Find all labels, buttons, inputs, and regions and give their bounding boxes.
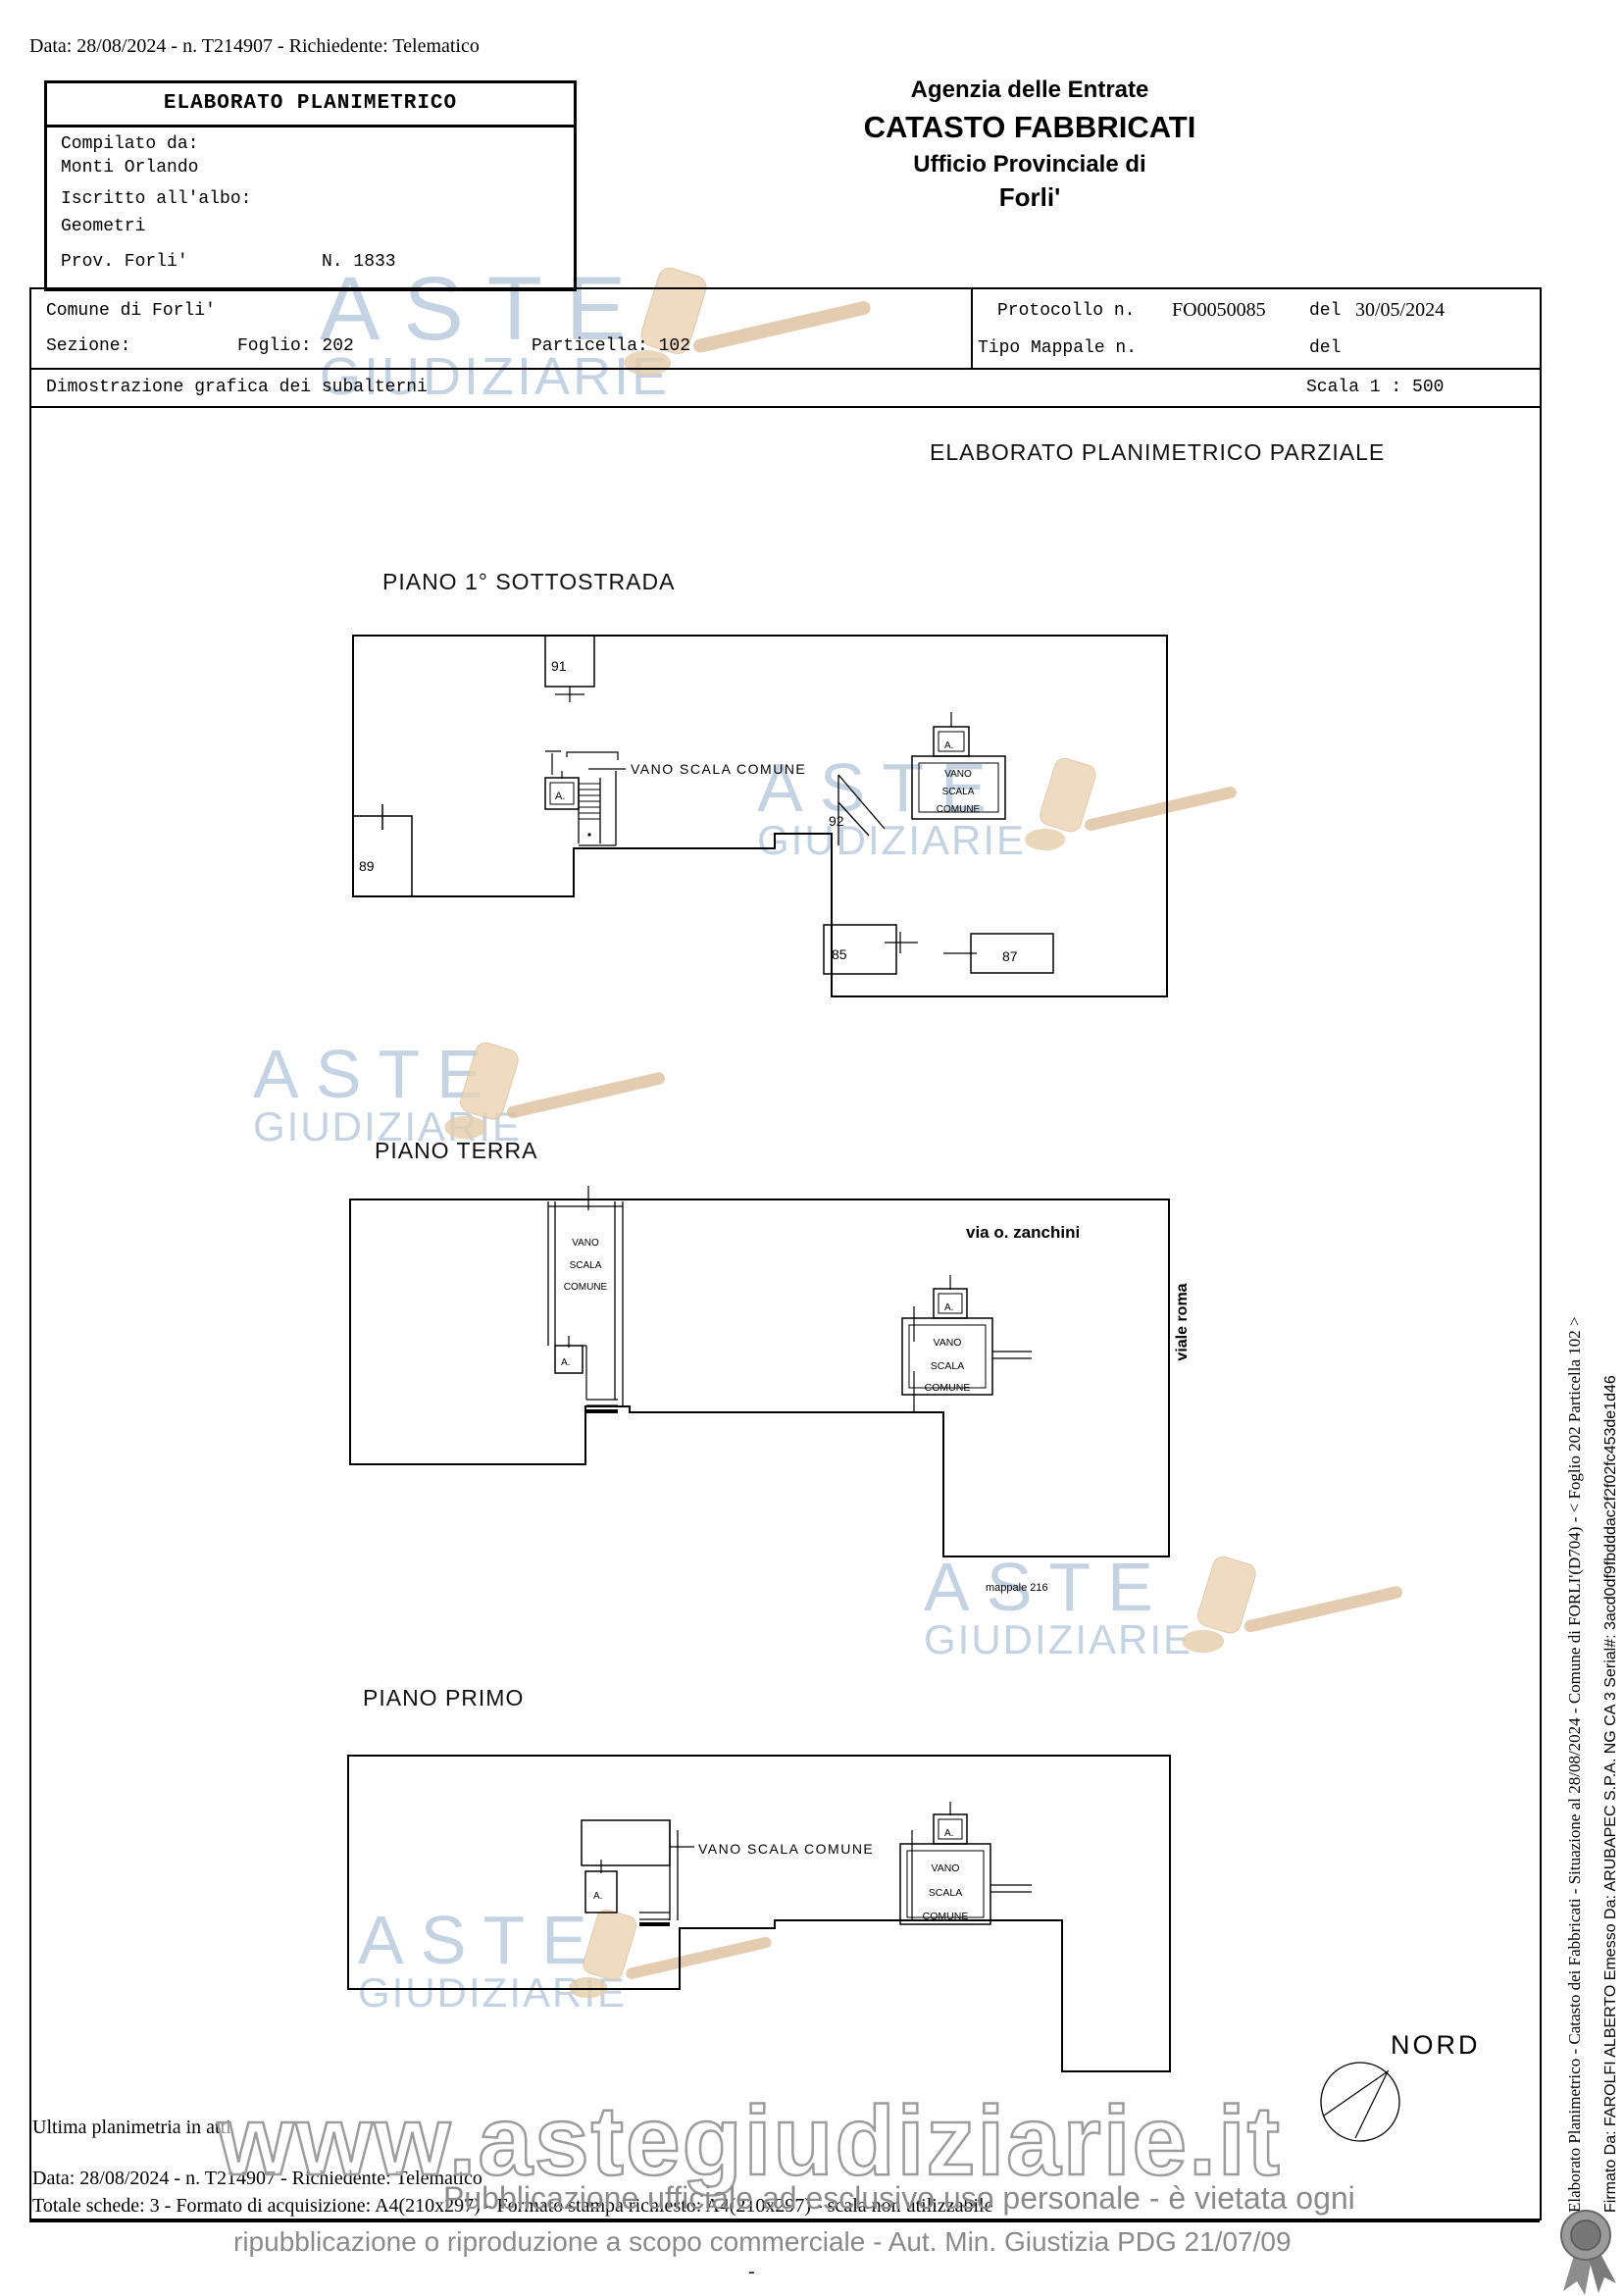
scala-label: SCALA — [570, 1260, 602, 1271]
vano-scala-comune-label: VANO SCALA COMUNE — [698, 1841, 874, 1857]
scala-label: SCALA — [931, 1360, 964, 1372]
vano-scala-comune-label: VANO SCALA COMUNE — [631, 761, 806, 777]
via-zanchini-label: via o. zanchini — [966, 1223, 1080, 1242]
sub-92-label: 92 — [829, 813, 844, 829]
sidebar-document-info: Elaborato Planimetrico - Catasto dei Fab… — [1565, 879, 1585, 2213]
totale-schede-line: Totale schede: 3 - Formato di acquisizio… — [32, 2195, 992, 2218]
scala-label: SCALA — [942, 787, 975, 797]
vano-label: VANO — [572, 1238, 599, 1249]
cadastral-document-page: { "header": { "data_line": "Data: 28/08/… — [0, 0, 1624, 2296]
sub-89-label: 89 — [359, 858, 375, 874]
vano-label: VANO — [944, 769, 972, 780]
mappale-216-label: mappale 216 — [986, 1582, 1048, 1594]
scala-label: SCALA — [929, 1887, 962, 1899]
ascensore-label: A. — [944, 1828, 953, 1839]
ascensore-label: A. — [555, 791, 565, 802]
sub-91-label: 91 — [551, 658, 567, 674]
stray-dash: - — [748, 2261, 755, 2283]
ascensore-label: A. — [561, 1357, 570, 1368]
sub-87-label: 87 — [1002, 948, 1018, 964]
comune-label: COMUNE — [923, 1911, 969, 1922]
floor-plans-drawing: 91 89 92 85 87 A. VANO SCALA COMUNE A. V… — [0, 0, 1624, 2296]
signature-seal-icon — [1548, 2209, 1624, 2296]
ascensore-label: A. — [944, 740, 953, 751]
sidebar-signature-info: Firmato Da: FAROLFI ALBERTO Emesso Da: A… — [1602, 879, 1620, 2213]
ascensore-label: A. — [944, 1302, 953, 1313]
footer-data-line: Data: 28/08/2024 - n. T214907 - Richiede… — [32, 2168, 482, 2190]
ascensore-label: A. — [593, 1891, 602, 1902]
ultima-planimetria-line: Ultima planimetria in atti — [32, 2117, 231, 2139]
comune-label: COMUNE — [937, 804, 981, 815]
vano-label: VANO — [934, 1337, 962, 1349]
nord-label: NORD — [1391, 2030, 1481, 2060]
sub-85-label: 85 — [832, 946, 847, 962]
viale-roma-label: viale roma — [1174, 1283, 1191, 1360]
vano-label: VANO — [932, 1862, 960, 1874]
comune-label: COMUNE — [925, 1382, 971, 1394]
comune-label: COMUNE — [564, 1282, 608, 1293]
